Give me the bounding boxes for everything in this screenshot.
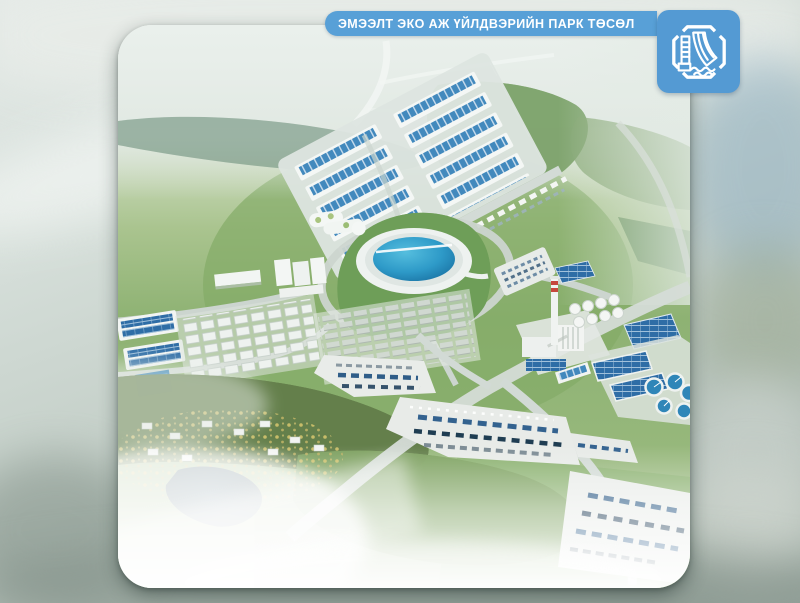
- bg-blob-olive: [700, 245, 800, 395]
- dam-glyph: [678, 32, 716, 75]
- project-banner: ЭМЭЭЛТ ЭКО АЖ ҮЙЛДВЭРИЙН ПАРК ТӨСӨЛ: [325, 11, 657, 36]
- eco-park-scene: [118, 25, 690, 588]
- poster-background: ЭМЭЭЛТ ЭКО АЖ ҮЙЛДВЭРИЙН ПАРК ТӨСӨЛ: [0, 0, 800, 603]
- hydro-dam-octagon-icon: [668, 21, 730, 83]
- logo-plate: [657, 10, 740, 93]
- project-title: ЭМЭЭЛТ ЭКО АЖ ҮЙЛДВЭРИЙН ПАРК ТӨСӨЛ: [338, 17, 635, 31]
- power-plant-chimney: [551, 277, 558, 345]
- aerial-rendering-image: [118, 25, 690, 588]
